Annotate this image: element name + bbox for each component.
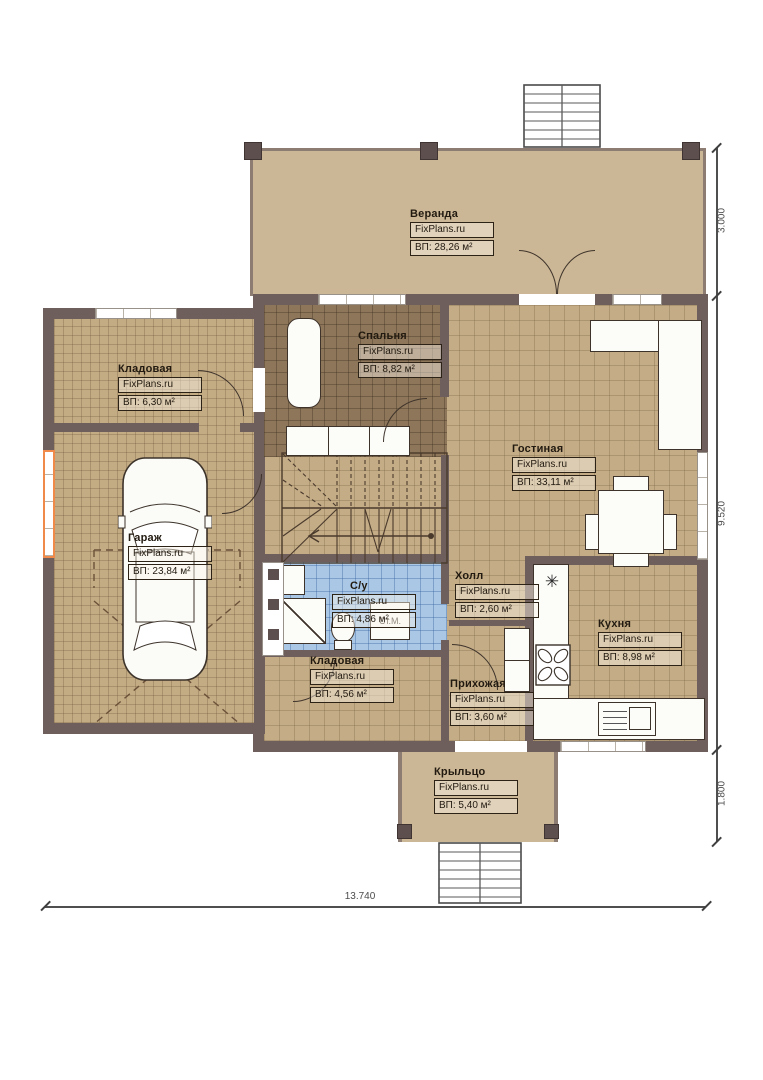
window-storage-top [95,308,177,319]
stairs-porch [438,842,522,904]
window-living-top [612,294,662,305]
interior-wall-annex-divider-left [54,423,199,432]
room-area: ВП: 28,26 м² [410,240,494,256]
niche-wall [262,562,284,656]
veranda-post [244,142,262,160]
room-name: Крыльцо [434,766,518,778]
room-label-storage-bottom: Кладовая FixPlans.ru ВП: 4,56 м² [310,655,394,703]
room-name: Гостиная [512,443,596,455]
room-label-storage-top: Кладовая FixPlans.ru ВП: 6,30 м² [118,363,202,411]
room-label-veranda: Веранда FixPlans.ru ВП: 28,26 м² [410,208,494,256]
room-brand: FixPlans.ru [310,669,394,685]
window-garage-left [43,450,55,558]
room-label-hall: Холл FixPlans.ru ВП: 2,60 м² [455,570,539,618]
room-brand: FixPlans.ru [450,692,534,708]
window-bedroom-top [318,294,406,305]
room-area: ВП: 8,98 м² [598,650,682,666]
stove [535,644,571,686]
dining-chair [613,476,649,491]
dining-table [598,490,664,554]
room-brand: FixPlans.ru [118,377,202,393]
room-brand: FixPlans.ru [128,546,212,562]
veranda-post [682,142,700,160]
room-name: Кладовая [310,655,394,667]
room-name: Кладовая [118,363,202,375]
interior-wall-bath-hall [441,558,449,604]
dining-chair [613,552,649,567]
bed-sofa [287,318,321,408]
room-label-kitchen: Кухня FixPlans.ru ВП: 8,98 м² [598,618,682,666]
stairs-veranda [523,84,601,148]
window-kitchen-bottom [560,741,646,752]
room-area: ВП: 5,40 м² [434,798,518,814]
porch-post [544,824,559,839]
room-area: ВП: 2,60 м² [455,602,539,618]
dimension-veranda-depth: 3.000 [717,191,728,251]
room-brand: FixPlans.ru [332,594,416,610]
room-area: ВП: 8,82 м² [358,362,442,378]
room-area: ВП: 33,11 м² [512,475,596,491]
floor-plan-canvas: Ст.М. ✳ [0,0,763,1080]
room-name: Холл [455,570,539,582]
veranda-door-opening [519,294,595,305]
room-brand: FixPlans.ru [512,457,596,473]
veranda-post [420,142,438,160]
room-brand: FixPlans.ru [434,780,518,796]
room-label-bathroom: С/у FixPlans.ru ВП: 4,86 м² [332,580,416,628]
room-brand: FixPlans.ru [358,344,442,360]
room-area: ВП: 4,56 м² [310,687,394,703]
room-label-garage: Гараж FixPlans.ru ВП: 23,84 м² [128,532,212,580]
dimension-porch-depth: 1.800 [717,764,728,824]
annex-door-opening [253,368,265,412]
room-brand: FixPlans.ru [410,222,494,238]
sofa-corner-arm [658,320,702,450]
porch-post [397,824,412,839]
room-name: Спальня [358,330,442,342]
kitchen-sink [598,702,656,736]
dimension-line-bottom [45,906,706,908]
window-living-right [697,452,708,560]
room-label-entry: Прихожая FixPlans.ru ВП: 3,60 м² [450,678,534,726]
vent-star-icon: ✳ [538,568,566,596]
room-name: Кухня [598,618,682,630]
room-brand: FixPlans.ru [455,584,539,600]
toilet-tank [334,640,352,650]
interior-wall-hall-entry [449,620,527,626]
room-area: ВП: 4,86 м² [332,612,416,628]
room-label-bedroom: Спальня FixPlans.ru ВП: 8,82 м² [358,330,442,378]
room-brand: FixPlans.ru [598,632,682,648]
room-area: ВП: 23,84 м² [128,564,212,580]
room-area: ВП: 3,60 м² [450,710,534,726]
dimension-house-depth: 9.520 [717,484,728,544]
room-area: ВП: 6,30 м² [118,395,202,411]
interior-wall-annex-divider-right [240,423,254,432]
room-name: Гараж [128,532,212,544]
room-label-living: Гостиная FixPlans.ru ВП: 33,11 м² [512,443,596,491]
stairs-main [281,452,448,564]
bath-sink [283,565,305,595]
room-name: Прихожая [450,678,534,690]
dining-chair [662,514,677,550]
room-name: С/у [350,580,416,592]
room-name: Веранда [410,208,494,220]
porch-door-opening [455,741,527,752]
dimension-total-width: 13.740 [320,891,400,902]
shower [280,598,326,644]
room-label-porch: Крыльцо FixPlans.ru ВП: 5,40 м² [434,766,518,814]
